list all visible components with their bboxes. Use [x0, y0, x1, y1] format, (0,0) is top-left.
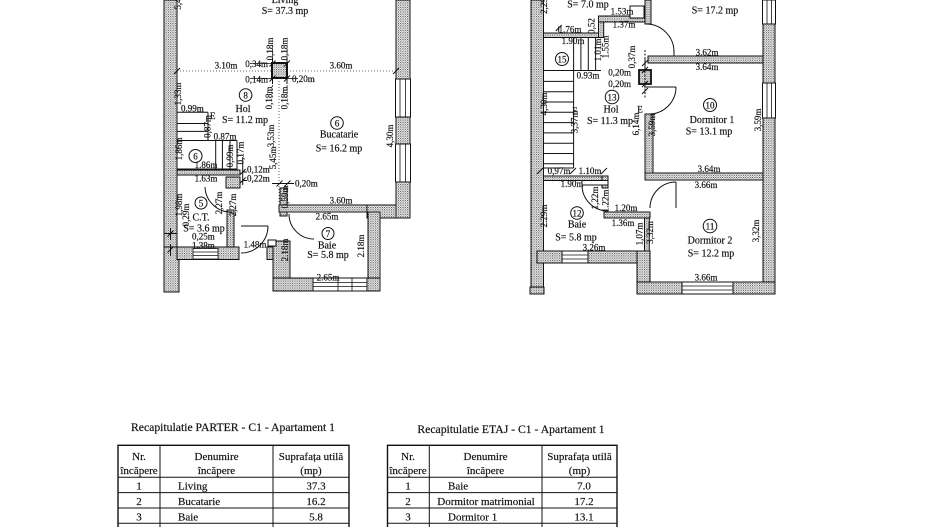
svg-text:0,18m: 0,18m	[280, 38, 290, 61]
svg-text:Recapitulatie ETAJ - C1 - Apar: Recapitulatie ETAJ - C1 - Apartament 1	[417, 423, 604, 436]
svg-text:0.93m: 0.93m	[577, 71, 600, 81]
svg-text:2,27m: 2,27m	[228, 194, 238, 217]
svg-text:8: 8	[243, 91, 248, 101]
svg-text:1.76m: 1.76m	[559, 25, 582, 35]
svg-text:0,20m: 0,20m	[608, 79, 631, 89]
svg-text:încăpere: încăpere	[119, 465, 157, 477]
svg-text:1.90m: 1.90m	[561, 179, 584, 189]
svg-text:Dormitor 2: Dormitor 2	[688, 236, 733, 247]
svg-text:Baie: Baie	[178, 511, 198, 523]
svg-text:0,20m: 0,20m	[295, 179, 318, 189]
svg-text:Recapitulatie PARTER - C1 - Ap: Recapitulatie PARTER - C1 - Apartament 1	[131, 421, 335, 434]
svg-text:0,99m: 0,99m	[225, 145, 235, 168]
svg-text:3.64m: 3.64m	[696, 62, 719, 72]
svg-text:încăpere: încăpere	[197, 465, 235, 477]
svg-text:13: 13	[608, 93, 618, 103]
svg-text:Nr.: Nr.	[132, 451, 146, 463]
svg-text:1.55m: 1.55m	[601, 36, 611, 59]
svg-text:2.29m: 2.29m	[539, 205, 549, 228]
svg-text:3,59m: 3,59m	[647, 114, 657, 137]
svg-text:0,17m: 0,17m	[236, 142, 246, 165]
svg-text:Suprafața utilă: Suprafața utilă	[279, 451, 344, 463]
svg-text:0.87m: 0.87m	[214, 132, 237, 142]
svg-text:S= 16.2 mp: S= 16.2 mp	[316, 144, 362, 155]
svg-text:4,30m: 4,30m	[385, 125, 395, 148]
svg-text:3.66m: 3.66m	[695, 273, 718, 283]
svg-text:Dormitor 1: Dormitor 1	[448, 511, 497, 523]
svg-text:0,37m: 0,37m	[627, 46, 637, 69]
svg-text:Denumire: Denumire	[464, 451, 508, 463]
svg-text:Dormitor 1: Dormitor 1	[690, 115, 735, 126]
svg-text:2,29: 2,29	[539, 0, 549, 14]
svg-text:Dormitor matrimonial: Dormitor matrimonial	[437, 496, 534, 508]
svg-text:S= 11.3 mp: S= 11.3 mp	[587, 116, 633, 127]
svg-text:3.60m: 3.60m	[330, 61, 353, 71]
svg-text:0.99m: 0.99m	[181, 104, 204, 114]
svg-text:3.64m: 3.64m	[698, 164, 721, 174]
svg-text:0,97m: 0,97m	[548, 166, 571, 176]
svg-text:0,22m: 0,22m	[247, 174, 270, 184]
svg-text:S= 12.2 mp: S= 12.2 mp	[688, 249, 734, 260]
svg-text:S= 5.8 mp: S= 5.8 mp	[307, 250, 348, 261]
svg-text:1,33m: 1,33m	[173, 83, 183, 106]
svg-text:S= 37.3 mp: S= 37.3 mp	[262, 6, 308, 17]
svg-text:6,14m: 6,14m	[631, 113, 641, 136]
svg-text:2.65m: 2.65m	[317, 273, 340, 283]
svg-text:3.10m: 3.10m	[215, 61, 238, 71]
svg-text:E: E	[572, 106, 578, 116]
svg-text:0,87m: 0,87m	[203, 115, 213, 138]
svg-text:Bucatarie: Bucatarie	[178, 496, 220, 508]
svg-text:5: 5	[199, 199, 204, 209]
svg-text:15: 15	[558, 55, 568, 65]
svg-text:3,32m: 3,32m	[645, 221, 655, 244]
svg-text:3.66m: 3.66m	[695, 180, 718, 190]
svg-text:1.37m: 1.37m	[613, 20, 636, 30]
svg-text:1.38m: 1.38m	[192, 241, 215, 251]
svg-text:2.18m: 2.18m	[356, 235, 366, 258]
svg-text:0,59m: 0,59m	[280, 186, 290, 209]
svg-text:13.1: 13.1	[574, 511, 593, 523]
svg-text:3: 3	[405, 511, 411, 523]
svg-text:încăpere: încăpere	[466, 465, 504, 477]
svg-text:2: 2	[136, 496, 142, 508]
svg-text:3.62m: 3.62m	[696, 48, 719, 58]
svg-text:Suprafața utilă: Suprafața utilă	[547, 451, 612, 463]
svg-text:Hol: Hol	[604, 105, 619, 116]
svg-text:Hol: Hol	[236, 104, 251, 115]
svg-text:(mp): (mp)	[569, 465, 591, 477]
svg-text:11: 11	[706, 222, 715, 232]
svg-text:0,18m: 0,18m	[280, 87, 290, 110]
svg-text:E: E	[637, 105, 643, 115]
svg-text:1,22m: 1,22m	[590, 187, 600, 210]
svg-text:0,52: 0,52	[587, 18, 597, 34]
svg-text:2: 2	[405, 496, 411, 508]
svg-text:17.2: 17.2	[574, 496, 593, 508]
svg-text:3.60m: 3.60m	[330, 196, 353, 206]
svg-text:2.65m: 2.65m	[316, 212, 339, 222]
svg-text:1.22m: 1.22m	[601, 190, 611, 213]
svg-text:37.3: 37.3	[306, 481, 326, 493]
svg-text:S= 13.1 mp: S= 13.1 mp	[686, 127, 732, 138]
svg-text:1,07m: 1,07m	[635, 223, 645, 246]
svg-text:Baie: Baie	[448, 481, 468, 493]
svg-text:4,30m: 4,30m	[539, 93, 549, 116]
svg-text:C.T.: C.T.	[192, 213, 209, 224]
svg-text:0,18m: 0,18m	[265, 38, 275, 61]
svg-text:7: 7	[326, 229, 331, 239]
svg-text:S= 11.2 mp: S= 11.2 mp	[222, 115, 268, 126]
svg-text:0,14m: 0,14m	[245, 75, 268, 85]
svg-text:1: 1	[136, 481, 142, 493]
svg-text:1.10m: 1.10m	[579, 166, 602, 176]
svg-text:Baie: Baie	[568, 220, 587, 231]
svg-text:1.36m: 1.36m	[612, 218, 635, 228]
svg-text:3,59m: 3,59m	[753, 109, 763, 132]
svg-text:5,4: 5,4	[173, 0, 183, 10]
svg-text:2.18m: 2.18m	[280, 239, 290, 262]
svg-text:Denumire: Denumire	[195, 451, 239, 463]
svg-text:3: 3	[136, 511, 142, 523]
svg-text:0,29m: 0,29m	[181, 204, 191, 227]
svg-text:3,26m: 3,26m	[583, 243, 606, 253]
svg-text:6: 6	[193, 152, 198, 162]
svg-text:Bucatarie: Bucatarie	[320, 130, 359, 141]
svg-text:1: 1	[405, 481, 411, 493]
svg-text:6: 6	[335, 119, 340, 129]
svg-text:1.63m: 1.63m	[195, 174, 218, 184]
svg-text:1,86m: 1,86m	[174, 138, 184, 161]
svg-text:1.20m: 1.20m	[615, 203, 638, 213]
svg-text:S= 7.0 mp: S= 7.0 mp	[567, 0, 608, 11]
svg-text:16.2: 16.2	[306, 496, 325, 508]
svg-text:5.8: 5.8	[309, 511, 323, 523]
svg-text:Nr.: Nr.	[401, 451, 415, 463]
svg-text:0,20m: 0,20m	[292, 74, 315, 84]
svg-text:S= 17.2 mp: S= 17.2 mp	[692, 6, 738, 17]
svg-text:încăpere: încăpere	[388, 465, 426, 477]
svg-text:12: 12	[573, 209, 582, 219]
svg-text:(mp): (mp)	[300, 465, 322, 477]
svg-text:1.48m: 1.48m	[244, 240, 267, 250]
svg-text:1.90m: 1.90m	[562, 36, 585, 46]
svg-text:10: 10	[706, 101, 716, 111]
svg-text:7.0: 7.0	[577, 481, 591, 493]
svg-text:1.53m: 1.53m	[611, 7, 634, 17]
svg-text:3,53m: 3,53m	[266, 125, 276, 148]
svg-text:Living: Living	[178, 481, 208, 493]
svg-text:0,18m: 0,18m	[264, 87, 274, 110]
svg-text:3,32m: 3,32m	[751, 220, 761, 243]
